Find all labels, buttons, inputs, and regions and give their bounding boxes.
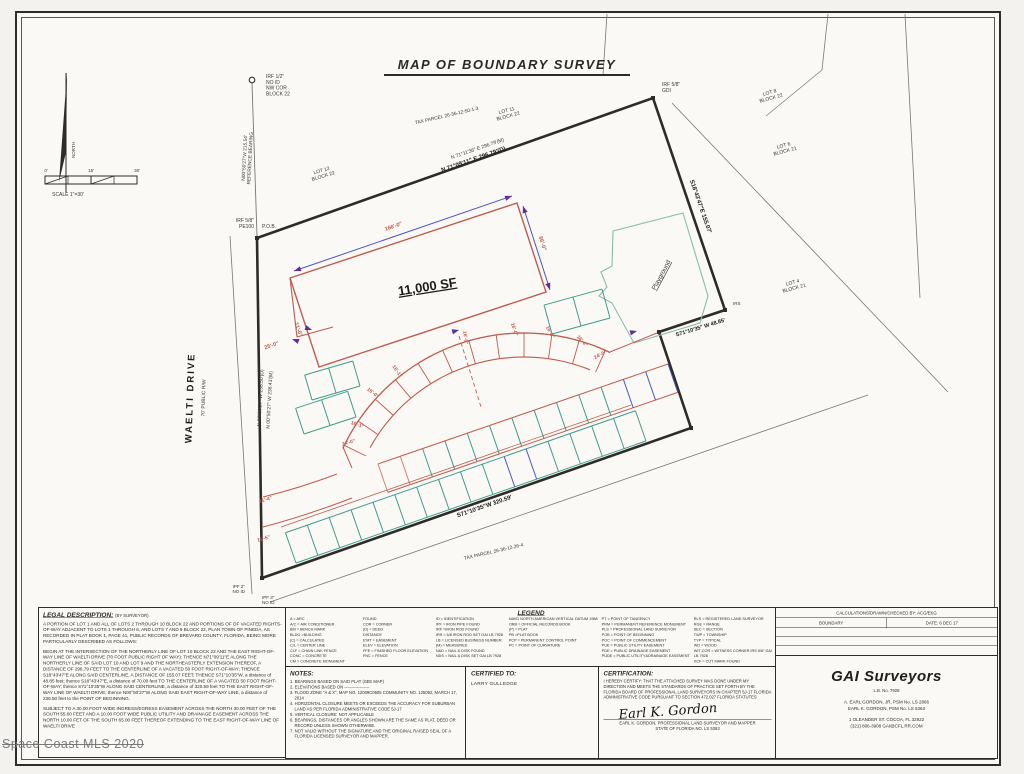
map-geometry — [439, 479, 450, 509]
map-geometry — [423, 449, 433, 477]
map-label: 11'-5" — [257, 534, 272, 543]
firm-surveyor-2: EARL K. GORDON, PSM No. LS 5363 — [776, 706, 997, 713]
map-geometry — [556, 402, 566, 430]
map-geometry — [388, 392, 678, 492]
legend-column: FOUNDCOR = CORNER(D) = DEEDDISTANCEE'MT … — [363, 617, 432, 665]
map-label: Playground — [651, 259, 673, 292]
map-label: IRF 5/8"PE100 — [236, 218, 254, 230]
map-geometry — [469, 341, 476, 364]
legal-description-title: LEGAL DESCRIPTION: (BY SURVEYOR) — [43, 611, 282, 619]
dimension-arrow — [505, 196, 512, 201]
survey-type: BOUNDARY — [776, 620, 886, 625]
map-geometry — [307, 525, 318, 555]
map-label: LOT 4BLOCK 21 — [780, 277, 806, 295]
map-geometry — [91, 176, 114, 184]
firm-surveyor-1: A. EARL GORDON, JR, PSM No. LS 2866 — [776, 699, 997, 706]
legend-entry: PUDE = PUBLIC UTILITY&DRAINAGE EASEMENT — [602, 654, 690, 659]
map-geometry — [672, 103, 948, 392]
map-geometry — [610, 333, 657, 352]
map-geometry — [378, 464, 388, 492]
map-label: 16'-0" — [509, 322, 519, 337]
map-geometry — [460, 472, 471, 502]
map-label: IRF 1/2"NO IDNW CORBLOCK 22 — [266, 74, 290, 97]
firm-license-number: L.B. No. 7928 — [776, 688, 997, 694]
dimension-arrow — [452, 329, 459, 334]
map-label: S18°43'47"E 155.07' — [688, 179, 712, 235]
legal-description-text: A PORTION OF LOT 1 AND ALL OF LOTS 2 THR… — [43, 621, 282, 729]
legal-paragraph: SUBJECT TO A 30.00 FOOT WIDE INGRESS/EGR… — [43, 706, 282, 730]
map-label: 16'-0" — [365, 387, 380, 400]
map-label: N00°50'27"W 215.54'REFERENCE BEARING — [241, 131, 255, 184]
note-item: 4. HORIZONTAL CLOSURE MEETS OR EXCEEDS T… — [290, 701, 462, 712]
map-geometry — [353, 361, 360, 386]
map-label: TAX PARCEL 26-36-12-50-1-3 — [414, 106, 479, 127]
map-geometry — [689, 426, 693, 430]
map-geometry — [417, 487, 428, 517]
map-geometry — [614, 418, 625, 448]
map-geometry — [534, 410, 544, 438]
map-geometry — [601, 387, 611, 415]
map-label: LOT 6BLOCK 21 — [771, 140, 797, 158]
map-label: N 00°50'27" W 236.41'(M) — [265, 371, 274, 429]
firm-phone-email: (321) 806-3908 GAI@CFL.RR.COM — [776, 723, 997, 730]
map-geometry — [348, 391, 356, 417]
watermark: Space Coast MLS 2020 — [2, 737, 144, 751]
survey-date: DATE: 6 DEC 17 — [886, 618, 997, 628]
map-geometry — [512, 418, 522, 446]
calc-empty-row — [776, 646, 997, 655]
map-geometry — [548, 441, 559, 471]
legal-description-box: LEGAL DESCRIPTION: (BY SURVEYOR) A PORTI… — [38, 607, 287, 758]
map-geometry — [375, 399, 393, 415]
legend-entry: XCF = CUT MARK FOUND — [694, 659, 772, 664]
map-geometry — [602, 289, 610, 318]
legend-column: RLS = REGISTERED LAND SURVEYORRGE = RANG… — [694, 617, 772, 665]
map-geometry — [329, 518, 340, 548]
map-geometry — [445, 441, 455, 469]
map-geometry — [579, 395, 589, 423]
map-geometry — [651, 96, 655, 100]
map-label: 166'-0" — [384, 221, 403, 233]
map-geometry — [255, 236, 259, 240]
map-geometry — [305, 375, 312, 400]
map-geometry — [418, 363, 431, 383]
map-geometry — [230, 236, 252, 594]
certification-box: CERTIFICATION: I HEREBY CERTIFY: THAT TH… — [598, 666, 777, 759]
dimension-arrow — [523, 206, 528, 213]
map-label: 16'-1" — [350, 420, 365, 430]
note-item: 3. FLOOD ZONE "A & X", MAP NO. 12009C050… — [290, 690, 462, 701]
map-title-text: MAP OF BOUNDARY SURVEY — [384, 57, 630, 76]
dimension-arrow — [545, 283, 550, 290]
certified-to-title: CERTIFIED TO: — [471, 670, 594, 677]
map-label: 11,000 SF — [397, 275, 458, 299]
map-geometry — [443, 350, 453, 372]
map-geometry — [526, 449, 537, 479]
map-geometry — [482, 464, 493, 494]
map-geometry — [504, 457, 515, 487]
certification-title: CERTIFICATION: — [604, 670, 772, 678]
map-label: WAELTI DRIVE — [183, 352, 197, 443]
map-geometry — [373, 502, 384, 532]
certified-to-box: CERTIFIED TO: LARRY GULLEDGE — [465, 666, 600, 759]
map-geometry — [344, 445, 366, 456]
map-label: 25'-0" — [264, 341, 280, 352]
map-label: 16'-1" — [390, 364, 403, 379]
map-geometry — [496, 335, 499, 359]
calc-header-row: CALCULATIONS/DRAWN/CHECKED BY: ACG/EKG — [776, 608, 997, 618]
map-geometry — [592, 426, 603, 456]
legend-column: A = ARCA/C = AIR CONDITIONERBM = BENCH M… — [290, 617, 359, 665]
map-label: 15' — [88, 168, 94, 173]
legend-column: PT = POINT OF TANGENCYPRM = PERMANENT RE… — [602, 617, 690, 665]
map-geometry — [459, 336, 481, 407]
map-geometry — [623, 379, 633, 407]
map-label: IPF 3"NO ID — [262, 595, 275, 605]
legend-entry: NDS = NAIL & DISK SET GAI LB 7928 — [436, 654, 505, 659]
legend-entry: FNC = FENCE — [363, 654, 432, 659]
legend-entry: CM = CONCRETE MONUMENT — [290, 659, 359, 664]
map-geometry — [400, 456, 410, 484]
map-geometry — [573, 297, 581, 326]
map-label: LOT 8BLOCK 22 — [757, 87, 783, 105]
map-label: 16'-0" — [544, 325, 556, 340]
legend-entry: PC = POINT OF CURVATURE — [509, 643, 598, 648]
legend-box: LEGEND A = ARCA/C = AIR CONDITIONERBM = … — [285, 607, 777, 668]
map-geometry — [294, 196, 512, 271]
map-geometry — [570, 434, 581, 464]
dimension-arrow — [294, 266, 301, 271]
map-geometry — [329, 368, 336, 393]
map-geometry — [635, 411, 646, 441]
map-label: 11'-0" — [293, 322, 304, 338]
calc-type-date-row: BOUNDARY DATE: 6 DEC 17 — [776, 618, 997, 628]
map-geometry — [490, 426, 500, 454]
legal-paragraph: BEGIN AT THE INTERSECTION OF THE NORTHER… — [43, 649, 282, 702]
certified-to-name: LARRY GULLEDGE — [471, 681, 594, 687]
note-item: 7. NOT VALID WITHOUT THE SIGNATURE AND T… — [290, 728, 462, 739]
legend-entry: IRS = 5/8 IRON ROD SET GAI LB 7928 — [436, 632, 505, 637]
map-label: 24'-0" — [341, 438, 356, 448]
map-label: LOT 12BLOCK 22 — [309, 165, 336, 183]
calc-empty-row — [776, 628, 997, 637]
map-label: IRF 5/8"GDI — [662, 82, 680, 94]
map-geometry — [467, 433, 477, 461]
dimension-arrow — [292, 339, 299, 344]
map-label: 70' PUBLIC R/W — [200, 379, 207, 417]
notes-box: NOTES: 1. BEARINGS BASED ON SAID PLAT (S… — [285, 666, 467, 759]
legend-column: NAVD NORTH AMERICAN VERTICAL DATUM 1988O… — [509, 617, 598, 665]
map-label: SCALE 1"=30' — [52, 192, 84, 198]
map-geometry — [723, 308, 727, 312]
firm-name: GAI Surveyors — [776, 665, 997, 688]
legend-column: ID = IDENTIFICATIONIPF = IRON PIPE FOUND… — [436, 617, 505, 665]
surveyor-license-line: STATE OF FLORIDA NO. LS 5363 — [604, 726, 772, 731]
map-label: 0' — [44, 168, 48, 173]
map-geometry — [668, 364, 678, 392]
playground-outline — [599, 213, 708, 343]
iron-rod-marker — [249, 77, 255, 83]
legal-paragraph: A PORTION OF LOT 1 AND ALL OF LOTS 2 THR… — [43, 621, 282, 645]
notes-title: NOTES: — [290, 670, 462, 678]
map-label: P.O.B. — [262, 224, 276, 230]
notes-list: 1. BEARINGS BASED ON SAID PLAT (SEE MAP)… — [290, 679, 462, 739]
map-geometry — [322, 400, 330, 426]
map-label: 30' — [134, 168, 140, 173]
map-geometry — [573, 341, 580, 364]
map-label: LOT 11BLOCK 22 — [494, 105, 520, 123]
map-label: NORTH — [71, 142, 76, 158]
dimension-arrow — [630, 330, 637, 335]
legend-columns: A = ARCA/C = AIR CONDITIONERBM = BENCH M… — [290, 610, 772, 664]
map-geometry — [343, 447, 352, 468]
map-geometry — [263, 474, 337, 497]
map-geometry — [646, 372, 656, 400]
map-title: MAP OF BOUNDARY SURVEY — [15, 56, 999, 76]
map-geometry — [395, 495, 406, 525]
map-geometry — [296, 408, 304, 434]
map-label: IRS — [733, 301, 741, 306]
map-geometry — [351, 510, 362, 540]
calc-empty-row — [776, 637, 997, 646]
map-geometry — [657, 330, 661, 334]
map-geometry — [260, 576, 264, 580]
firm-address: 1 OLEANDER ST. COCOA, FL 32922 — [776, 716, 997, 723]
map-label: IPF 2"NO ID — [232, 584, 245, 594]
map-geometry — [45, 176, 68, 184]
map-geometry — [285, 533, 296, 563]
legend-title: LEGEND — [286, 609, 776, 617]
map-geometry — [395, 380, 410, 398]
map-label: TAX PARCEL 26-36-12-26-4 — [464, 542, 525, 562]
note-item: 6. BEARINGS, DISTANCES OR ANGLES SHOWN A… — [290, 717, 462, 728]
surveyor-firm-box: GAI Surveyors L.B. No. 7928 A. EARL GORD… — [775, 655, 998, 759]
map-label: 66'-0" — [537, 236, 547, 252]
map-geometry — [263, 498, 352, 527]
title-block-table: CALCULATIONS/DRAWN/CHECKED BY: ACG/EKG B… — [775, 607, 998, 657]
